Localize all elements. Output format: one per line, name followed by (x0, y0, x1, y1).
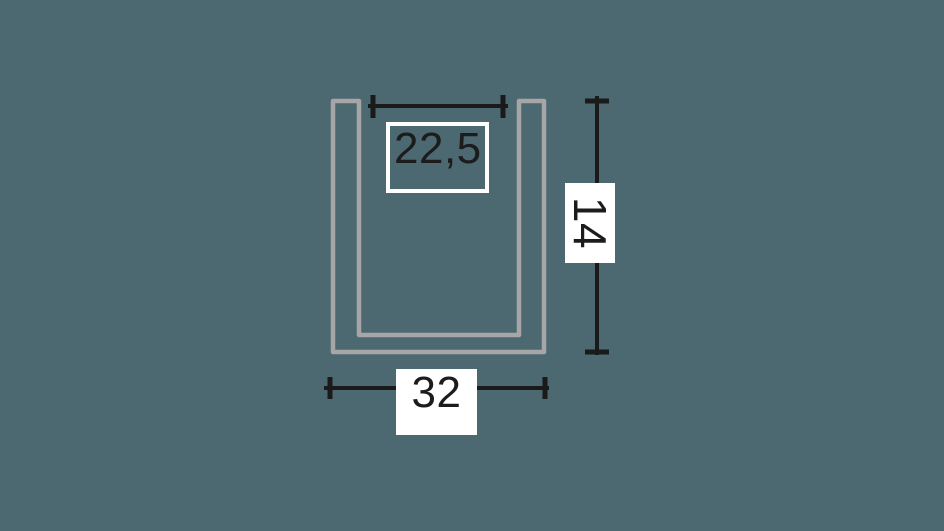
height-value: 14 (563, 197, 617, 249)
inner-width-value: 22,5 (394, 124, 482, 173)
diagram-drawing (0, 0, 944, 531)
dimension-inner-width (368, 95, 508, 118)
outer-width-value-box: 32 (396, 369, 477, 435)
profile-dimension-diagram: 22,5 14 32 (0, 0, 944, 531)
height-value-box: 14 (565, 183, 615, 263)
outer-width-value: 32 (412, 368, 462, 417)
inner-width-value-box[interactable]: 22,5 (386, 122, 489, 193)
